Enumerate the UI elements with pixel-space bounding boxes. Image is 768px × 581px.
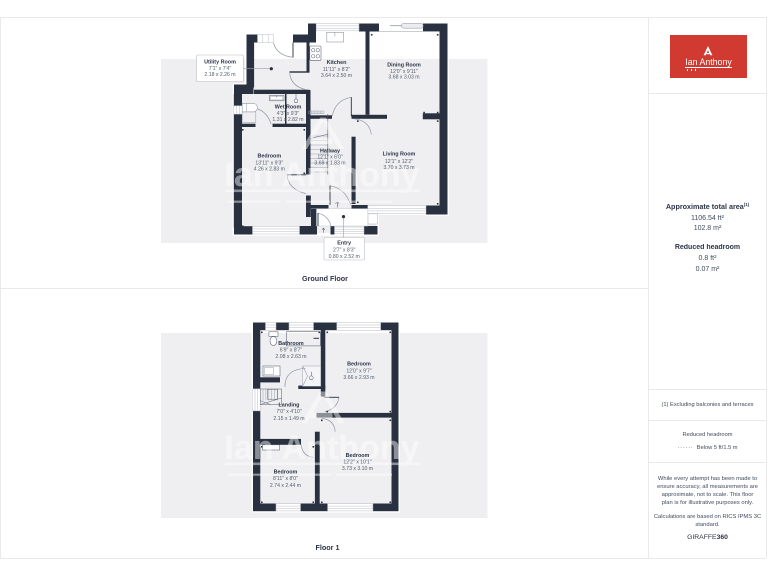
svg-text:13'11" x 9'3": 13'11" x 9'3"	[255, 160, 283, 166]
svg-text:3.68 x 3.03 m: 3.68 x 3.03 m	[388, 75, 419, 81]
svg-text:Bedroom: Bedroom	[257, 154, 281, 160]
svg-text:Utility Room: Utility Room	[204, 60, 236, 66]
svg-text:Kitchen: Kitchen	[327, 60, 347, 66]
svg-text:12'0" x 9'7": 12'0" x 9'7"	[346, 368, 372, 374]
svg-text:2.15 x 1.49 m: 2.15 x 1.49 m	[273, 416, 304, 422]
svg-text:1.31 x 2.82 m: 1.31 x 2.82 m	[272, 117, 303, 123]
svg-text:Landing: Landing	[279, 402, 300, 408]
svg-text:2.08 x 2.63 m: 2.08 x 2.63 m	[275, 354, 306, 360]
svg-text:Hallway: Hallway	[320, 148, 340, 154]
svg-text:Bedroom: Bedroom	[347, 362, 371, 368]
svg-text:4.26 x 2.83 m: 4.26 x 2.83 m	[254, 166, 285, 172]
svg-text:0.80 x 2.52 m: 0.80 x 2.52 m	[329, 254, 360, 260]
svg-text:Entry: Entry	[337, 241, 351, 247]
svg-text:12'2" x 10'1": 12'2" x 10'1"	[343, 460, 371, 466]
svg-text:2.74 x 2.44 m: 2.74 x 2.44 m	[270, 483, 301, 489]
svg-text:7'0" x 4'10": 7'0" x 4'10"	[276, 409, 302, 415]
svg-text:Wet Room: Wet Room	[275, 104, 302, 110]
svg-text:3.64 x 2.50 m: 3.64 x 2.50 m	[321, 73, 352, 79]
svg-text:Living Room: Living Room	[383, 152, 416, 158]
svg-text:8'11" x 8'0": 8'11" x 8'0"	[273, 476, 298, 482]
svg-text:Bathroom: Bathroom	[278, 341, 304, 347]
svg-text:Bedroom: Bedroom	[346, 453, 370, 459]
svg-text:2'7" x 8'3": 2'7" x 8'3"	[333, 247, 356, 253]
svg-text:12'1" x 6'0": 12'1" x 6'0"	[317, 155, 343, 161]
svg-text:Ian Anthony: Ian Anthony	[224, 429, 419, 467]
svg-text:2.18 x 2.26 m: 2.18 x 2.26 m	[204, 72, 235, 78]
svg-text:3.66 x 2.93 m: 3.66 x 2.93 m	[343, 375, 374, 381]
svg-text:Bedroom: Bedroom	[274, 469, 298, 475]
svg-text:3.70 x 3.73 m: 3.70 x 3.73 m	[383, 165, 414, 171]
svg-text:3.69 x 1.83 m: 3.69 x 1.83 m	[314, 161, 345, 167]
svg-text:6'9" x 8'7": 6'9" x 8'7"	[280, 348, 303, 354]
svg-text:Dining Room: Dining Room	[387, 62, 421, 68]
svg-text:3.73 x 3.10 m: 3.73 x 3.10 m	[342, 466, 373, 472]
